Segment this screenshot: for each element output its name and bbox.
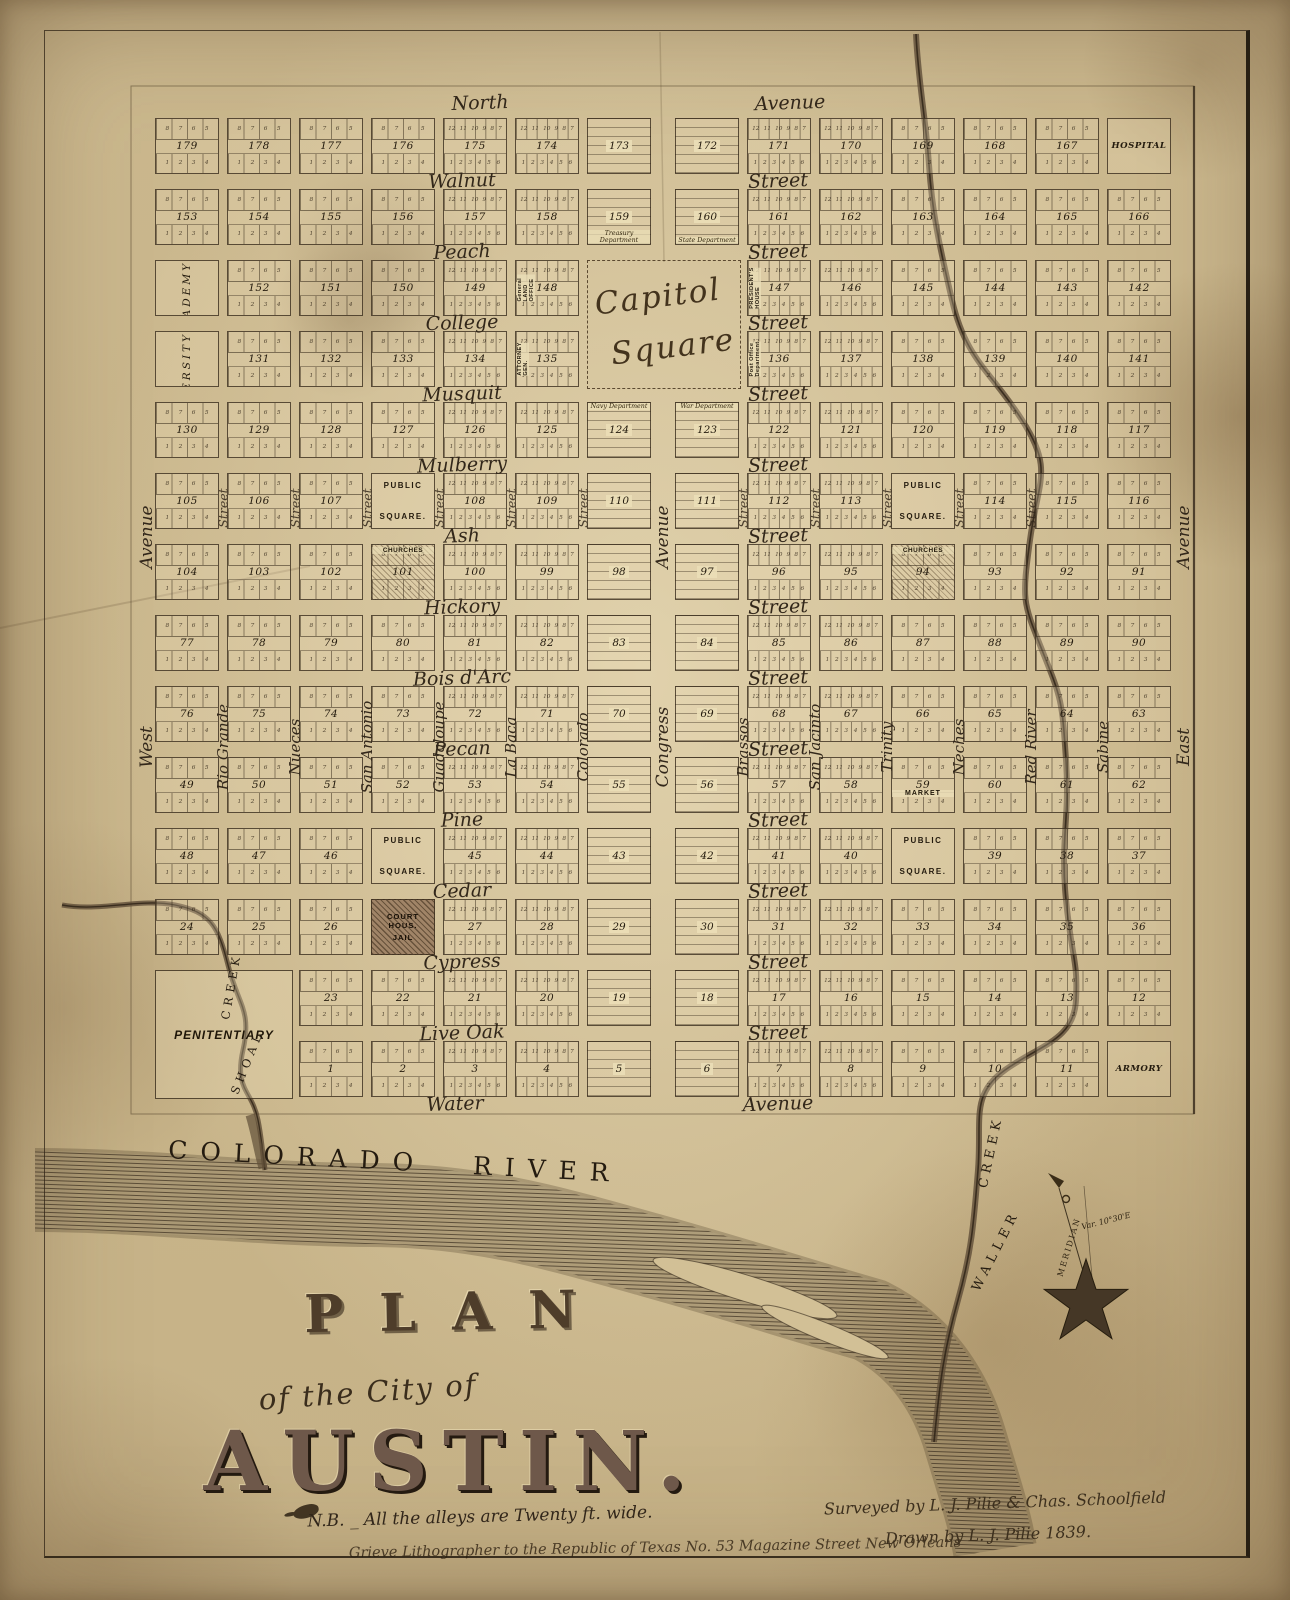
lot-numbers: 1234 [228, 509, 290, 529]
street-type-label: Street [748, 808, 809, 832]
lot-numbers: 8765 [156, 616, 218, 636]
lot-number: 1 [381, 1012, 385, 1018]
lot-number: 3 [336, 657, 340, 663]
lot-number: 9 [859, 623, 863, 629]
lot-number: 2 [1059, 231, 1063, 237]
lot-number: 12 [520, 1049, 527, 1055]
city-block: 56 [675, 757, 739, 813]
lot-number: 11 [764, 410, 771, 416]
lot-number: 9 [787, 339, 791, 345]
lot-number: 3 [540, 231, 544, 237]
lot-numbers: 8765 [156, 758, 218, 778]
lot-numbers: 8765 [1108, 403, 1170, 423]
city-block: 87651531234 [155, 189, 219, 245]
lot-numbers: 1234 [892, 225, 954, 245]
lot-number: 3 [928, 1083, 932, 1089]
lot-number: 7 [251, 552, 255, 558]
city-block: 12111098753123456 [443, 757, 507, 813]
block-alley: 126 [444, 423, 506, 438]
block-number: 24 [180, 921, 194, 933]
city-block: 87651321234 [299, 331, 363, 387]
lot-number: 11 [764, 126, 771, 132]
lot-number: 3 [336, 941, 340, 947]
lot-number: 4 [1013, 302, 1017, 308]
block-alley: 64 [1036, 707, 1098, 722]
block-number: 86 [844, 637, 858, 649]
street-name-label: Live Oak [419, 1021, 505, 1046]
city-block: 1211109878123456 [819, 1041, 883, 1097]
lot-number: 3 [1144, 657, 1148, 663]
lot-number: 7 [395, 623, 399, 629]
lot-number: 8 [381, 978, 385, 984]
lot-number: 5 [421, 410, 425, 416]
city-block: 87651031234 [227, 544, 291, 600]
lot-numbers: 121110987 [444, 545, 506, 565]
block-alley: 150 [372, 281, 434, 296]
block-number: 46 [324, 850, 338, 862]
lot-number: 6 [569, 160, 573, 166]
lot-number: 6 [928, 126, 932, 132]
lot-number: 4 [782, 870, 786, 876]
block-alley: 49 [156, 778, 218, 793]
lot-numbers: 1234 [228, 935, 290, 955]
lot-number: 3 [264, 160, 268, 166]
lot-numbers: 1234 [1036, 367, 1098, 387]
lot-number: 3 [1144, 799, 1148, 805]
lot-number: 2 [915, 231, 919, 237]
lot-number: 4 [277, 586, 281, 592]
block-number: 26 [324, 921, 338, 933]
lot-number: 8 [866, 1049, 870, 1055]
lot-numbers: 1234 [372, 793, 434, 813]
city-block: 8765491234 [155, 757, 219, 813]
lot-number: 7 [323, 836, 327, 842]
lot-number: 4 [941, 302, 945, 308]
lot-number: 5 [1157, 623, 1161, 629]
lot-number: 9 [859, 481, 863, 487]
lot-number: 10 [775, 694, 782, 700]
lot-number: 5 [863, 1012, 867, 1018]
lot-numbers: 8765 [156, 190, 218, 210]
lot-number: 5 [863, 941, 867, 947]
lot-number: 4 [550, 444, 554, 450]
lot-number: 7 [987, 623, 991, 629]
city-block: 8765931234 [963, 544, 1027, 600]
city-block: 121110987170123456 [819, 118, 883, 174]
lot-number: 12 [824, 552, 831, 558]
lot-number: 4 [277, 444, 281, 450]
lot-number: 5 [559, 657, 563, 663]
block-number: 93 [988, 566, 1002, 578]
lot-numbers: 121110987 [748, 971, 810, 991]
lot-number: 5 [1085, 765, 1089, 771]
block-alley: 72 [444, 707, 506, 722]
lot-number: 9 [859, 765, 863, 771]
lot-numbers: 1234 [1108, 509, 1170, 529]
city-block: 87651521234 [227, 260, 291, 316]
lot-number: 1 [754, 870, 758, 876]
lot-number: 4 [1085, 799, 1089, 805]
lot-number: 3 [1072, 657, 1076, 663]
lot-number: 11 [460, 978, 467, 984]
lot-number: 2 [395, 160, 399, 166]
city-block: 87651141234 [963, 473, 1027, 529]
lot-number: 2 [763, 657, 767, 663]
lot-number: 2 [835, 302, 839, 308]
lot-number: 4 [349, 160, 353, 166]
lot-number: 2 [323, 799, 327, 805]
lot-number: 5 [863, 586, 867, 592]
block-number: 90 [1132, 637, 1146, 649]
lot-numbers: 1234 [1108, 935, 1170, 955]
lot-number: 6 [1072, 765, 1076, 771]
lot-number: 7 [1131, 268, 1135, 274]
lot-number: 4 [277, 728, 281, 734]
lot-number: 6 [873, 160, 877, 166]
city-block: 8765941234CHURCHES [891, 544, 955, 600]
lot-number: 3 [772, 1083, 776, 1089]
city-block: 8765521234 [371, 757, 435, 813]
lot-number: 8 [973, 623, 977, 629]
lot-numbers: 123456 [516, 935, 578, 955]
block-alley: 38 [1036, 849, 1098, 864]
block-number: 88 [988, 637, 1002, 649]
lot-numbers: 8765 [1036, 261, 1098, 281]
lot-number: 2 [251, 586, 255, 592]
block-number: 176 [392, 140, 414, 152]
city-block: 121110987112123456 [747, 473, 811, 529]
block-alley: 24 [156, 920, 218, 935]
waller-creek-label: CREEK [976, 1115, 1006, 1190]
block-number: 113 [840, 495, 862, 507]
lot-number: 8 [562, 339, 566, 345]
city-block: 87651281234 [299, 402, 363, 458]
lot-number: 4 [550, 1012, 554, 1018]
lot-number: 3 [844, 302, 848, 308]
lot-numbers: 121110987 [748, 119, 810, 139]
block-number: 32 [844, 921, 858, 933]
city-block: 1211109873123456 [443, 1041, 507, 1097]
lot-number: 4 [854, 302, 858, 308]
lot-numbers: 1234 [228, 296, 290, 316]
lot-number: 4 [1085, 302, 1089, 308]
lot-number: 3 [928, 728, 932, 734]
lot-number: 8 [237, 765, 241, 771]
lot-number: 4 [782, 586, 786, 592]
lot-number: 10 [775, 339, 782, 345]
city-block: 876521234 [371, 1041, 435, 1097]
street-type-label: Avenue [754, 91, 825, 115]
block-number: 133 [392, 353, 414, 365]
block-alley: 62 [1108, 778, 1170, 793]
lot-number: 1 [1045, 231, 1049, 237]
lot-numbers: 8765 [1108, 616, 1170, 636]
city-block: 121110987158123456 [515, 189, 579, 245]
block-number: 58 [844, 779, 858, 791]
lot-number: 4 [550, 515, 554, 521]
lot-number: 6 [569, 799, 573, 805]
lot-numbers: 8765 [228, 687, 290, 707]
city-block: 121110987125123456 [515, 402, 579, 458]
block-number: 142 [1128, 282, 1150, 294]
lot-number: 3 [468, 373, 472, 379]
lot-number: 1 [165, 515, 169, 521]
lot-number: 4 [782, 941, 786, 947]
lot-number: 7 [874, 197, 878, 203]
lot-number: 5 [941, 978, 945, 984]
lot-number: 2 [835, 657, 839, 663]
lot-number: 1 [901, 444, 905, 450]
lot-number: 8 [973, 907, 977, 913]
lot-number: 7 [498, 907, 502, 913]
block-alley: 73 [372, 707, 434, 722]
lot-number: 7 [874, 1049, 878, 1055]
city-block: 8765241234 [155, 899, 219, 955]
lot-numbers: 123456 [820, 154, 882, 174]
lot-number: 3 [772, 373, 776, 379]
city-block: 87651421234 [1107, 260, 1171, 316]
lot-number: 1 [309, 799, 313, 805]
lot-numbers: 1234 [156, 935, 218, 955]
city-block: 87651411234 [1107, 331, 1171, 387]
lot-number: 3 [844, 657, 848, 663]
lot-number: 2 [531, 373, 535, 379]
block-number: 160 [694, 211, 720, 223]
lot-number: 5 [421, 1049, 425, 1055]
lot-number: 8 [309, 978, 313, 984]
lot-number: 9 [859, 126, 863, 132]
lot-number: 1 [1117, 657, 1121, 663]
lot-number: 4 [205, 941, 209, 947]
lot-number: 4 [1013, 373, 1017, 379]
block-number: 149 [464, 282, 486, 294]
lot-numbers: 8765 [372, 758, 434, 778]
lot-number: 2 [459, 231, 463, 237]
lot-number: 10 [847, 978, 854, 984]
lot-number: 4 [1157, 231, 1161, 237]
lot-number: 7 [570, 410, 574, 416]
lot-number: 4 [349, 728, 353, 734]
lot-number: 5 [487, 728, 491, 734]
lot-numbers: 123456 [820, 793, 882, 813]
block-number: 159 [606, 211, 632, 223]
city-block: 55 [587, 757, 651, 813]
lot-number: 1 [522, 941, 526, 947]
lot-number: 6 [497, 444, 501, 450]
lot-number: 1 [973, 728, 977, 734]
lot-number: 5 [487, 160, 491, 166]
block-alley: 132 [300, 352, 362, 367]
lot-number: 7 [1059, 765, 1063, 771]
lot-number: 9 [483, 836, 487, 842]
lot-number: 10 [543, 694, 550, 700]
lot-numbers: 1234 [372, 367, 434, 387]
block-number: 71 [540, 708, 554, 720]
colorado-river-label: COLORADO RIVER [168, 1135, 623, 1188]
block-alley: 48 [156, 849, 218, 864]
lot-numbers: 121110987 [748, 616, 810, 636]
lot-numbers: 1234 [964, 1006, 1026, 1026]
block-number: 1 [327, 1063, 334, 1075]
lot-number: 10 [775, 836, 782, 842]
lot-number: 6 [1144, 410, 1148, 416]
city-block: 121110987134123456 [443, 331, 507, 387]
lot-number: 7 [1131, 978, 1135, 984]
lot-number: 6 [336, 339, 340, 345]
lot-number: 8 [866, 907, 870, 913]
lot-number: 1 [309, 586, 313, 592]
block-number: 100 [464, 566, 486, 578]
lot-numbers: 1234 [156, 509, 218, 529]
lot-numbers: 1234 [300, 651, 362, 671]
lot-number: 5 [349, 765, 353, 771]
lot-number: 11 [460, 126, 467, 132]
lot-number: 3 [1000, 1012, 1004, 1018]
city-block: 121110987136123456Post Office Department [747, 331, 811, 387]
lot-number: 8 [309, 765, 313, 771]
lot-number: 11 [764, 623, 771, 629]
lot-number: 11 [836, 1049, 843, 1055]
lot-number: 2 [531, 1012, 535, 1018]
lot-number: 5 [277, 552, 281, 558]
lot-number: 2 [1059, 373, 1063, 379]
block-alley: 80 [372, 636, 434, 651]
lot-number: 2 [1131, 870, 1135, 876]
lot-numbers: 1234 [300, 225, 362, 245]
lot-number: 2 [179, 870, 183, 876]
street-name-label: Cedar [432, 879, 491, 903]
lot-numbers: 1234 [892, 296, 954, 316]
lot-number: 5 [941, 694, 945, 700]
lithographer-credit: Grieve Lithographer to the Republic of T… [349, 1535, 961, 1562]
lot-number: 5 [863, 160, 867, 166]
lot-numbers: 8765 [964, 616, 1026, 636]
lot-number: 4 [550, 1083, 554, 1089]
lot-number: 3 [844, 586, 848, 592]
lot-number: 5 [863, 302, 867, 308]
lot-number: 4 [1157, 373, 1161, 379]
lot-number: 11 [836, 410, 843, 416]
lot-numbers: 8765 [300, 403, 362, 423]
lot-number: 7 [915, 197, 919, 203]
lot-number: 10 [471, 339, 478, 345]
block-alley: 94 [892, 565, 954, 580]
lot-number: 3 [1144, 728, 1148, 734]
lot-number: 4 [854, 799, 858, 805]
lot-number: 8 [866, 410, 870, 416]
lot-numbers: 1234 [1036, 225, 1098, 245]
lot-number: 10 [847, 197, 854, 203]
street-type-label: Street [748, 311, 809, 335]
block-number: 158 [536, 211, 558, 223]
city-block: 12111098757123456 [747, 757, 811, 813]
block-number: 134 [464, 353, 486, 365]
block-alley: 1 [300, 1062, 362, 1077]
lot-number: 4 [421, 160, 425, 166]
lot-number: 10 [471, 126, 478, 132]
block-number: 54 [540, 779, 554, 791]
block-number: 61 [1060, 779, 1074, 791]
lot-number: 6 [264, 339, 268, 345]
lot-numbers: 1234 [156, 793, 218, 813]
street-name-label: Red River [1022, 709, 1040, 784]
block-number: 84 [697, 637, 716, 649]
lot-numbers: 1234 [372, 580, 434, 600]
lot-number: 5 [1013, 268, 1017, 274]
street-type-label: Street [576, 488, 591, 527]
lot-numbers: 8765 [228, 474, 290, 494]
lot-number: 2 [763, 1012, 767, 1018]
block-number: 28 [540, 921, 554, 933]
city-block: 121110987109123456 [515, 473, 579, 529]
lot-number: 4 [205, 799, 209, 805]
lot-number: 8 [794, 410, 798, 416]
lot-number: 12 [448, 978, 455, 984]
lot-number: 8 [1117, 552, 1121, 558]
lot-number: 1 [1045, 373, 1049, 379]
lot-numbers: 8765 [964, 829, 1026, 849]
lot-number: 2 [251, 941, 255, 947]
lot-numbers: 1234 [156, 864, 218, 884]
lot-number: 12 [520, 126, 527, 132]
lot-number: 6 [569, 870, 573, 876]
block-number: 99 [540, 566, 554, 578]
lot-number: 7 [915, 268, 919, 274]
lot-number: 2 [987, 1083, 991, 1089]
lot-number: 7 [1059, 197, 1063, 203]
lot-number: 7 [570, 836, 574, 842]
lot-number: 10 [471, 694, 478, 700]
lot-number: 8 [562, 765, 566, 771]
lot-number: 1 [1117, 515, 1121, 521]
lot-number: 2 [531, 586, 535, 592]
lot-number: 1 [826, 515, 830, 521]
lot-number: 4 [854, 728, 858, 734]
lot-number: 7 [179, 836, 183, 842]
lot-number: 1 [522, 657, 526, 663]
lot-number: 7 [1059, 907, 1063, 913]
block-alley: 138 [892, 352, 954, 367]
lot-number: 1 [754, 586, 758, 592]
lot-numbers: 8765 [964, 119, 1026, 139]
lot-number: 1 [826, 1012, 830, 1018]
city-block: 172 [675, 118, 739, 174]
lot-number: 6 [873, 799, 877, 805]
city-block: 12111098721123456 [443, 970, 507, 1026]
lot-number: 6 [336, 268, 340, 274]
lot-numbers: 8765 [156, 687, 218, 707]
lot-number: 6 [801, 1012, 805, 1018]
lot-number: 8 [901, 765, 905, 771]
lot-number: 7 [802, 694, 806, 700]
lot-number: 1 [165, 231, 169, 237]
block-alley: 36 [1108, 920, 1170, 935]
lot-number: 5 [349, 126, 353, 132]
lot-number: 5 [487, 231, 491, 237]
block-number: 82 [540, 637, 554, 649]
lot-number: 12 [824, 339, 831, 345]
lot-number: 10 [775, 552, 782, 558]
lot-number: 3 [264, 515, 268, 521]
block-alley: 149 [444, 281, 506, 296]
lot-number: 2 [763, 515, 767, 521]
lot-number: 2 [323, 302, 327, 308]
lot-numbers: 8765 [156, 474, 218, 494]
street-name-label: La Baca [502, 717, 520, 778]
lot-number: 4 [782, 1083, 786, 1089]
lot-number: 4 [421, 373, 425, 379]
lot-numbers: 8765 [300, 687, 362, 707]
